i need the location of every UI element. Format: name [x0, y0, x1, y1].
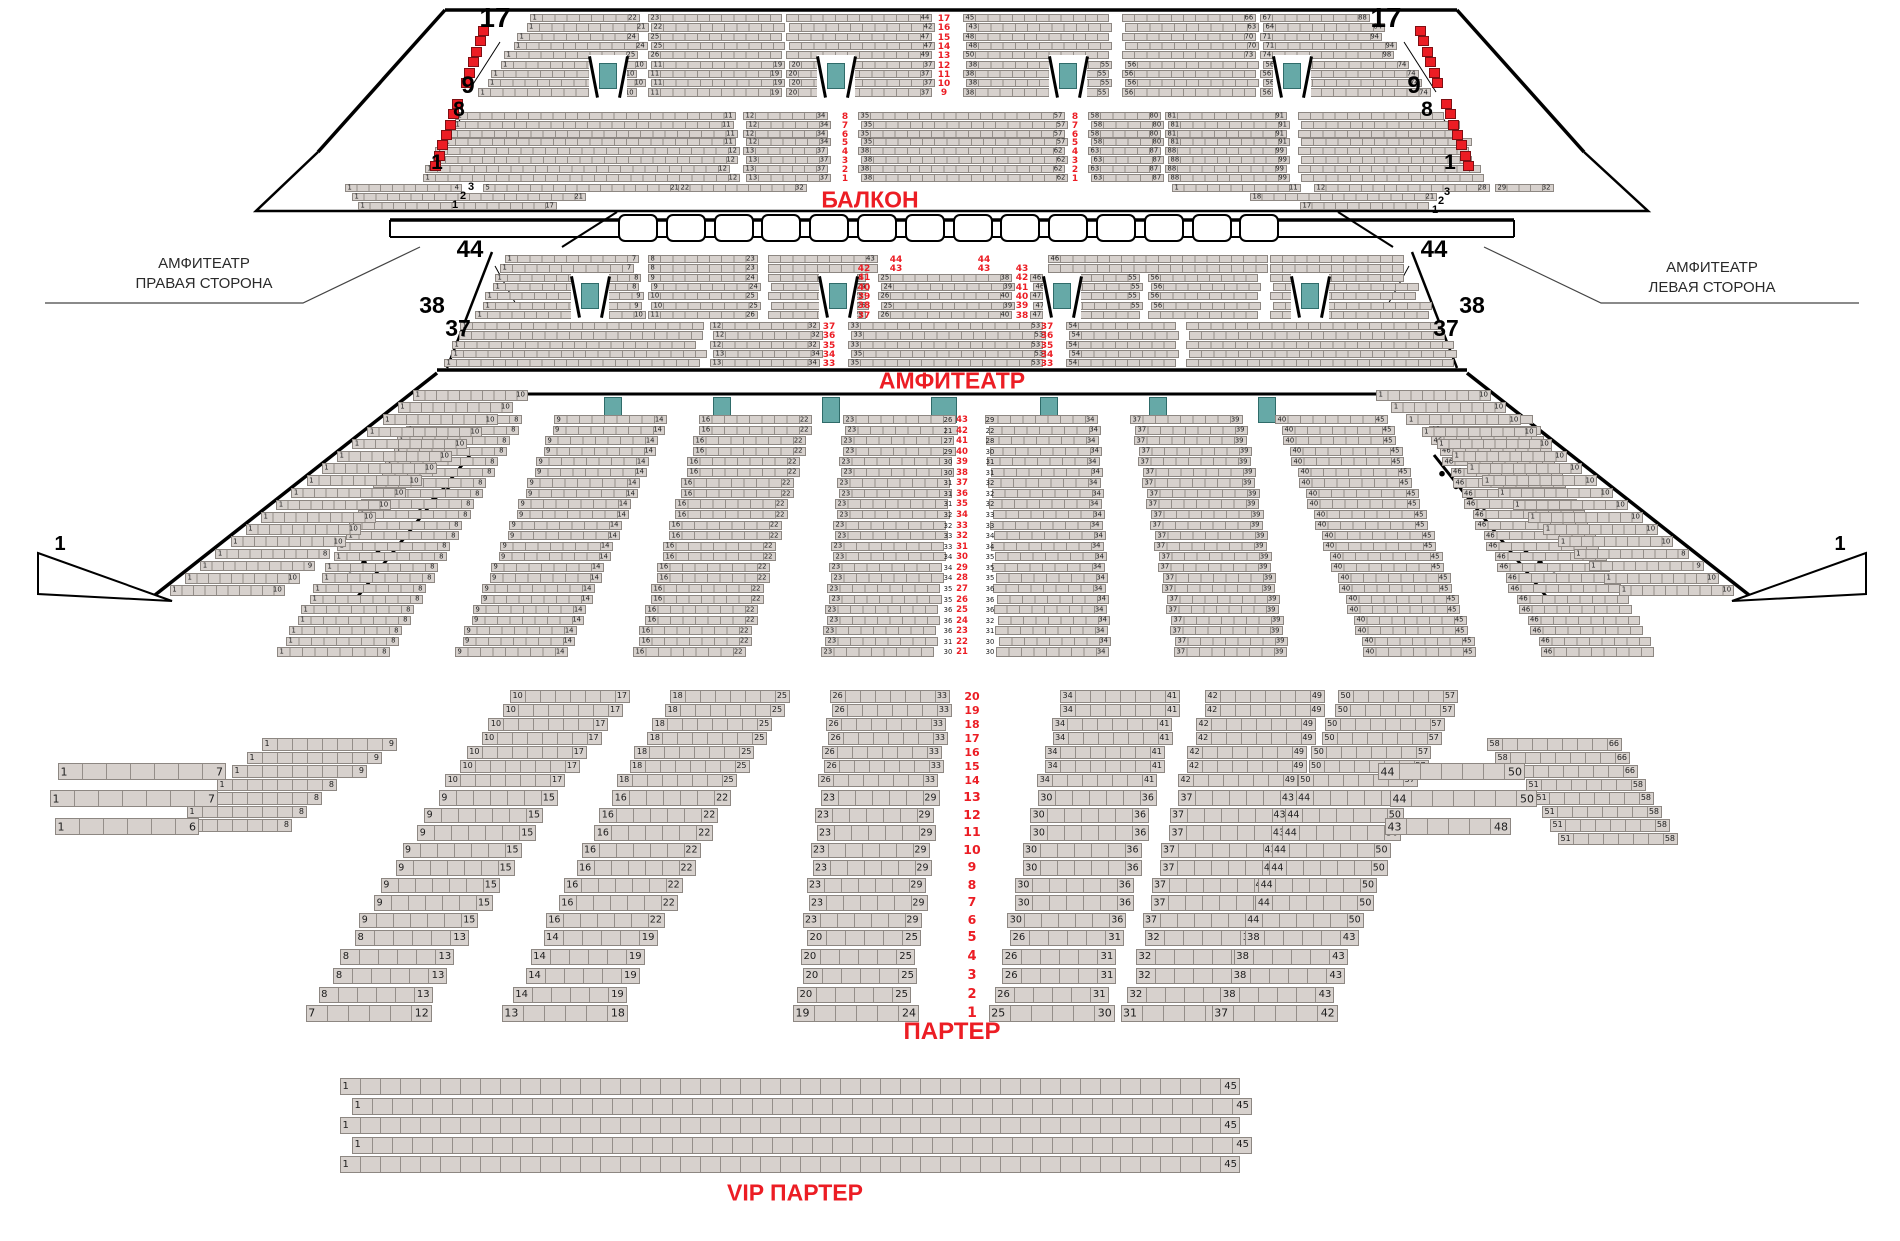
- seat-row[interactable]: 2633: [822, 746, 942, 759]
- seat-row[interactable]: 34: [988, 478, 1101, 487]
- seat-row[interactable]: 3739: [1138, 457, 1251, 466]
- seat-row[interactable]: 23: [829, 563, 942, 572]
- seat-row[interactable]: 924: [651, 283, 761, 291]
- seat-row[interactable]: 3441: [1037, 774, 1157, 787]
- seat-row[interactable]: 3739: [1135, 426, 1248, 435]
- seat-row[interactable]: 1232: [713, 331, 823, 339]
- seat-row[interactable]: [1186, 341, 1454, 349]
- seat-row[interactable]: 3739: [1174, 647, 1287, 656]
- seat-row[interactable]: 124: [517, 33, 639, 41]
- seat-row[interactable]: 124: [514, 42, 648, 50]
- seat-row[interactable]: 111: [1172, 184, 1301, 192]
- seat-row[interactable]: 34: [994, 531, 1107, 540]
- seat-row[interactable]: 8191: [1165, 112, 1287, 120]
- seat-row[interactable]: 8899: [1168, 174, 1290, 182]
- seat-row[interactable]: 34: [990, 447, 1103, 456]
- seat-row[interactable]: 110: [307, 475, 422, 486]
- seat-row[interactable]: 18: [325, 563, 438, 572]
- seat-row[interactable]: 26: [648, 51, 782, 59]
- seat-row[interactable]: 34: [991, 542, 1104, 551]
- seat-row[interactable]: 1622: [633, 647, 746, 656]
- seat-row[interactable]: 48: [963, 33, 1109, 41]
- seat-row[interactable]: 4045: [1347, 605, 1460, 614]
- seat-row[interactable]: 914: [545, 436, 658, 445]
- seat-row[interactable]: 1622: [645, 605, 758, 614]
- seat-row[interactable]: 1017: [482, 732, 602, 745]
- seat-row[interactable]: 3855: [966, 79, 1112, 87]
- seat-row[interactable]: 3557: [858, 130, 1065, 138]
- red-seat[interactable]: [1425, 57, 1436, 67]
- seat-row[interactable]: 4450: [1255, 895, 1374, 911]
- seat-row[interactable]: 4450: [1378, 763, 1525, 780]
- seat-row[interactable]: 4045: [1282, 426, 1395, 435]
- seat-row[interactable]: 3036: [1015, 895, 1134, 911]
- seat-row[interactable]: 110: [1482, 475, 1597, 486]
- seat-row[interactable]: 34: [997, 595, 1110, 604]
- seat-row[interactable]: 914: [508, 531, 621, 540]
- seat-row[interactable]: 2037: [789, 79, 935, 87]
- seat-row[interactable]: 3353: [848, 341, 1043, 349]
- seat-row[interactable]: 3739: [1175, 637, 1288, 646]
- seat-row[interactable]: 122: [530, 14, 640, 22]
- balcony-box[interactable]: [1096, 214, 1136, 242]
- seat-row[interactable]: 2439: [881, 283, 1015, 291]
- seat-row[interactable]: 1017: [503, 704, 623, 717]
- seat-row[interactable]: 34: [987, 457, 1100, 466]
- seat-row[interactable]: 46: [1508, 584, 1621, 593]
- seat-row[interactable]: 1825: [617, 774, 737, 787]
- seat-row[interactable]: 3743: [1151, 895, 1270, 911]
- seat-row[interactable]: 1622: [687, 457, 800, 466]
- seat-row[interactable]: 4450: [1390, 790, 1537, 807]
- seat-row[interactable]: 23: [827, 584, 940, 593]
- seat-row[interactable]: 914: [500, 542, 613, 551]
- seat-row[interactable]: 3742: [1212, 1005, 1338, 1022]
- seat-row[interactable]: 3843: [1234, 949, 1348, 965]
- seat-row[interactable]: 712: [306, 1005, 432, 1022]
- seat-row[interactable]: 1622: [669, 521, 782, 530]
- seat-row[interactable]: 112: [433, 156, 738, 164]
- seat-row[interactable]: 2633: [832, 704, 952, 717]
- seat-row[interactable]: 2631: [1010, 930, 1124, 946]
- seat-row[interactable]: 23: [841, 436, 954, 445]
- seat-row[interactable]: 18: [313, 584, 426, 593]
- seat-row[interactable]: 4045: [1330, 552, 1443, 561]
- seat-row[interactable]: 73: [1122, 51, 1256, 59]
- seat-row[interactable]: 3036: [1038, 790, 1157, 806]
- seat-row[interactable]: 3557: [858, 112, 1065, 120]
- seat-row[interactable]: 18: [215, 549, 330, 560]
- balcony-box[interactable]: [666, 214, 706, 242]
- seat-row[interactable]: 3441: [1060, 704, 1180, 717]
- seat-row[interactable]: 3036: [1030, 825, 1149, 841]
- seat-row[interactable]: 2329: [817, 825, 936, 841]
- seat-row[interactable]: 1825: [665, 704, 785, 717]
- red-seat[interactable]: [1456, 140, 1467, 150]
- seat-row[interactable]: 2025: [801, 949, 915, 965]
- seat-row[interactable]: 4045: [1363, 647, 1476, 656]
- seat-row[interactable]: 18: [277, 647, 390, 656]
- red-seat[interactable]: [445, 120, 456, 130]
- balcony-box[interactable]: [761, 214, 801, 242]
- seat-row[interactable]: 914: [463, 637, 576, 646]
- seat-row[interactable]: 6788: [1260, 14, 1370, 22]
- seat-row[interactable]: 6387: [1091, 156, 1164, 164]
- seat-row[interactable]: 1017: [460, 760, 580, 773]
- balcony-box[interactable]: [1144, 214, 1184, 242]
- seat-row[interactable]: 2329: [815, 808, 934, 824]
- seat-row[interactable]: 110: [1422, 427, 1537, 438]
- seat-row[interactable]: 813: [355, 930, 469, 946]
- seat-row[interactable]: 110: [352, 439, 467, 450]
- seat-row[interactable]: [1301, 174, 1484, 182]
- seat-row[interactable]: 7194: [1263, 42, 1397, 50]
- seat-row[interactable]: 23: [837, 478, 950, 487]
- seat-row[interactable]: 2538: [878, 274, 1012, 282]
- seat-row[interactable]: 4045: [1323, 542, 1436, 551]
- seat-row[interactable]: 1622: [639, 626, 752, 635]
- seat-row[interactable]: 17: [50, 790, 218, 807]
- seat-row[interactable]: 3739: [1142, 478, 1255, 487]
- seat-row[interactable]: 19: [1589, 561, 1704, 572]
- seat-row[interactable]: 3036: [1007, 913, 1126, 929]
- balcony-box[interactable]: [714, 214, 754, 242]
- seat-row[interactable]: 3739: [1130, 415, 1243, 424]
- red-seat[interactable]: [1418, 36, 1429, 46]
- seat-row[interactable]: 1622: [612, 790, 731, 806]
- seat-row[interactable]: 6387: [1088, 165, 1161, 173]
- seat-row[interactable]: 4045: [1283, 436, 1396, 445]
- red-seat[interactable]: [441, 130, 452, 140]
- seat-row[interactable]: 4045: [1322, 531, 1435, 540]
- seat-row[interactable]: 18: [495, 274, 641, 282]
- seat-row[interactable]: 8899: [1168, 156, 1290, 164]
- seat-row[interactable]: 111: [445, 130, 738, 138]
- seat-row[interactable]: 2232: [678, 184, 807, 192]
- seat-row[interactable]: 3739: [1150, 521, 1263, 530]
- red-seat[interactable]: [1429, 68, 1440, 78]
- red-seat[interactable]: [1432, 78, 1443, 88]
- seat-row[interactable]: 23: [833, 552, 946, 561]
- seat-row[interactable]: 915: [381, 878, 500, 894]
- seat-row[interactable]: 3862: [861, 156, 1068, 164]
- seat-row[interactable]: 2633: [818, 774, 938, 787]
- seat-row[interactable]: 1419: [531, 949, 645, 965]
- seat-row[interactable]: 47: [789, 42, 935, 50]
- seat-row[interactable]: 5880: [1088, 112, 1161, 120]
- balcony-box[interactable]: [1000, 214, 1040, 242]
- seat-row[interactable]: 5057: [1335, 704, 1455, 717]
- seat-row[interactable]: 18: [301, 605, 414, 614]
- seat-row[interactable]: 1622: [681, 489, 794, 498]
- seat-row[interactable]: 56: [1148, 274, 1258, 282]
- seat-row[interactable]: 1622: [645, 616, 758, 625]
- seat-row[interactable]: 3739: [1147, 489, 1260, 498]
- seat-row[interactable]: 1232: [710, 341, 820, 349]
- seat-row[interactable]: 110: [291, 488, 406, 499]
- seat-row[interactable]: 18: [286, 637, 399, 646]
- seat-row[interactable]: 1017: [510, 690, 630, 703]
- seat-row[interactable]: 1334: [713, 350, 823, 358]
- seat-row[interactable]: 56: [1122, 70, 1256, 78]
- seat-row[interactable]: 18: [187, 806, 307, 819]
- seat-row[interactable]: 3855: [963, 88, 1109, 96]
- seat-row[interactable]: 5880: [1088, 130, 1161, 138]
- seat-row[interactable]: 110: [1543, 524, 1658, 535]
- seat-row[interactable]: 4450: [1269, 860, 1388, 876]
- seat-row[interactable]: 110: [398, 402, 513, 413]
- seat-row[interactable]: 3036: [1023, 860, 1142, 876]
- seat-row[interactable]: 63: [1125, 23, 1259, 31]
- seat-row[interactable]: 3739: [1167, 595, 1280, 604]
- seat-row[interactable]: 5866: [1487, 738, 1622, 751]
- seat-row[interactable]: 4045: [1314, 510, 1427, 519]
- seat-row[interactable]: 8191: [1168, 138, 1290, 146]
- seat-row[interactable]: 18: [493, 283, 639, 291]
- seat-row[interactable]: 2640: [878, 292, 1012, 300]
- seat-row[interactable]: 1622: [577, 860, 696, 876]
- seat-row[interactable]: 46: [1517, 595, 1630, 604]
- seat-row[interactable]: 915: [374, 895, 493, 911]
- seat-row[interactable]: 42: [789, 23, 935, 31]
- seat-row[interactable]: 34: [992, 489, 1105, 498]
- seat-row[interactable]: 914: [481, 595, 594, 604]
- seat-row[interactable]: 46: [1048, 255, 1268, 263]
- seat-row[interactable]: 1119: [648, 88, 782, 96]
- seat-row[interactable]: 4045: [1275, 415, 1388, 424]
- seat-row[interactable]: 1622: [594, 825, 713, 841]
- seat-row[interactable]: 34: [989, 499, 1102, 508]
- seat-row[interactable]: 2025: [807, 930, 921, 946]
- seat-row[interactable]: 18: [1574, 549, 1689, 560]
- seat-row[interactable]: 2631: [1002, 968, 1116, 984]
- seat-row[interactable]: 110: [1558, 536, 1673, 547]
- seat-row[interactable]: 110: [276, 500, 391, 511]
- seat-row[interactable]: 1419: [544, 930, 658, 946]
- seat-row[interactable]: 2329: [813, 860, 932, 876]
- seat-row[interactable]: 23: [835, 531, 948, 540]
- seat-row[interactable]: 4450: [1272, 843, 1391, 859]
- seat-row[interactable]: 4450: [1258, 878, 1377, 894]
- seat-row[interactable]: 2329: [811, 843, 930, 859]
- seat-row[interactable]: 823: [648, 255, 758, 263]
- seat-row[interactable]: 23: [845, 426, 958, 435]
- seat-row[interactable]: 1234: [746, 138, 831, 146]
- seat-row[interactable]: 1622: [693, 436, 806, 445]
- seat-row[interactable]: 5158: [1542, 806, 1662, 819]
- seat-row[interactable]: 914: [499, 552, 612, 561]
- seat-row[interactable]: 1126: [648, 311, 758, 319]
- seat-row[interactable]: 111: [455, 112, 736, 120]
- seat-row[interactable]: 3743: [1169, 825, 1288, 841]
- seat-row[interactable]: 2037: [786, 70, 932, 78]
- seat-row[interactable]: 2631: [1002, 949, 1116, 965]
- seat-row[interactable]: 2633: [824, 760, 944, 773]
- seat-row[interactable]: 23: [648, 14, 782, 22]
- seat-row[interactable]: 1622: [663, 542, 776, 551]
- seat-row[interactable]: 2329: [807, 878, 926, 894]
- seat-row[interactable]: 3739: [1151, 510, 1264, 519]
- seat-row[interactable]: 18: [289, 626, 402, 635]
- seat-row[interactable]: 23: [843, 447, 956, 456]
- red-seat[interactable]: [468, 57, 479, 67]
- seat-row[interactable]: 110: [337, 451, 452, 462]
- seat-row[interactable]: 1622: [669, 531, 782, 540]
- seat-row[interactable]: 4249: [1205, 704, 1325, 717]
- seat-row[interactable]: 110: [1376, 390, 1491, 401]
- seat-row[interactable]: 1622: [582, 843, 701, 859]
- seat-row[interactable]: 1232: [710, 322, 820, 330]
- seat-row[interactable]: 1025: [648, 292, 758, 300]
- seat-row[interactable]: 3739: [1155, 531, 1268, 540]
- vip-seat-row[interactable]: 145: [340, 1156, 1240, 1173]
- seat-row[interactable]: 1825: [634, 746, 754, 759]
- seat-row[interactable]: 23: [839, 457, 952, 466]
- seat-row[interactable]: 1825: [630, 760, 750, 773]
- seat-row[interactable]: [1189, 331, 1445, 339]
- seat-row[interactable]: 56: [1148, 292, 1258, 300]
- seat-row[interactable]: [1301, 138, 1472, 146]
- seat-row[interactable]: 46: [1541, 647, 1654, 656]
- seat-row[interactable]: 3739: [1139, 447, 1252, 456]
- seat-row[interactable]: 1622: [657, 573, 770, 582]
- seat-row[interactable]: 3743: [1178, 790, 1297, 806]
- seat-row[interactable]: 25: [648, 33, 782, 41]
- seat-row[interactable]: 914: [526, 489, 639, 498]
- seat-row[interactable]: 3843: [1231, 968, 1345, 984]
- seat-row[interactable]: 3441: [1052, 718, 1172, 731]
- seat-row[interactable]: 915: [424, 808, 543, 824]
- seat-row[interactable]: 54: [1069, 350, 1179, 358]
- seat-row[interactable]: 6387: [1088, 147, 1161, 155]
- seat-row[interactable]: 112: [425, 165, 730, 173]
- seat-row[interactable]: 4045: [1354, 616, 1467, 625]
- seat-row[interactable]: 34: [991, 468, 1104, 477]
- seat-row[interactable]: 3739: [1158, 563, 1271, 572]
- seat-row[interactable]: 3553: [848, 359, 1043, 367]
- seat-row[interactable]: 5057: [1325, 718, 1445, 731]
- seat-row[interactable]: 924: [648, 274, 758, 282]
- seat-row[interactable]: 3739: [1170, 626, 1283, 635]
- seat-row[interactable]: 19: [232, 765, 367, 778]
- seat-row[interactable]: 121: [352, 193, 586, 201]
- balcony-box[interactable]: [809, 214, 849, 242]
- seat-row[interactable]: 914: [491, 563, 604, 572]
- seat-row[interactable]: 22: [651, 23, 785, 31]
- seat-row[interactable]: 34: [999, 637, 1112, 646]
- seat-row[interactable]: 2633: [828, 732, 948, 745]
- seat-row[interactable]: 1825: [652, 718, 772, 731]
- seat-row[interactable]: 110: [261, 512, 376, 523]
- seat-row[interactable]: 3743: [1161, 843, 1280, 859]
- seat-row[interactable]: 1622: [675, 499, 788, 508]
- seat-row[interactable]: 18: [346, 531, 459, 540]
- seat-row[interactable]: [1270, 264, 1404, 272]
- seat-row[interactable]: 18: [202, 792, 322, 805]
- seat-row[interactable]: 46: [1530, 626, 1643, 635]
- seat-row[interactable]: 110: [475, 311, 646, 319]
- seat-row[interactable]: 914: [517, 510, 630, 519]
- seat-row[interactable]: 1622: [546, 913, 665, 929]
- seat-row[interactable]: 110: [1498, 488, 1613, 499]
- seat-row[interactable]: 1622: [651, 584, 764, 593]
- seat-row[interactable]: 813: [333, 968, 447, 984]
- red-seat[interactable]: [1460, 151, 1471, 161]
- seat-row[interactable]: 44: [786, 14, 932, 22]
- seat-row[interactable]: 4045: [1299, 478, 1412, 487]
- seat-row[interactable]: 915: [439, 790, 558, 806]
- seat-row[interactable]: 23: [829, 595, 942, 604]
- seat-row[interactable]: [1148, 311, 1258, 319]
- red-seat[interactable]: [1441, 99, 1452, 109]
- balcony-box[interactable]: [1239, 214, 1279, 242]
- seat-row[interactable]: 914: [490, 573, 603, 582]
- seat-row[interactable]: 56: [1122, 88, 1256, 96]
- seat-row[interactable]: 56: [1151, 302, 1261, 310]
- seat-row[interactable]: 2329: [809, 895, 928, 911]
- seat-row[interactable]: 3743: [1170, 808, 1289, 824]
- seat-row[interactable]: 1622: [639, 637, 752, 646]
- seat-row[interactable]: 54: [1069, 331, 1179, 339]
- seat-row[interactable]: 1: [459, 331, 703, 339]
- seat-row[interactable]: 4045: [1346, 595, 1459, 604]
- seat-row[interactable]: 3441: [1053, 732, 1173, 745]
- seat-row[interactable]: 5057: [1311, 746, 1431, 759]
- seat-row[interactable]: 914: [518, 499, 631, 508]
- seat-row[interactable]: 4045: [1291, 457, 1404, 466]
- vip-seat-row[interactable]: 145: [340, 1117, 1240, 1134]
- seat-row[interactable]: 43: [768, 255, 878, 263]
- seat-row[interactable]: 1622: [681, 478, 794, 487]
- seat-row[interactable]: 1119: [648, 70, 782, 78]
- seat-row[interactable]: 19: [483, 302, 642, 310]
- seat-row[interactable]: 54: [1066, 341, 1176, 349]
- seat-row[interactable]: 110: [246, 524, 361, 535]
- seat-row[interactable]: 3843: [1220, 987, 1334, 1003]
- seat-row[interactable]: 3353: [851, 331, 1046, 339]
- seat-row[interactable]: 4450: [1245, 913, 1364, 929]
- seat-row[interactable]: 23: [841, 468, 954, 477]
- seat-row[interactable]: 4045: [1355, 626, 1468, 635]
- seat-row[interactable]: 23: [821, 647, 934, 656]
- seat-row[interactable]: 1821: [1250, 193, 1437, 201]
- seat-row[interactable]: 2633: [830, 690, 950, 703]
- seat-row[interactable]: 1119: [651, 79, 785, 87]
- seat-row[interactable]: 3855: [966, 61, 1112, 69]
- seat-row[interactable]: 110: [1452, 451, 1567, 462]
- seat-row[interactable]: 121: [527, 23, 649, 31]
- seat-row[interactable]: 18: [310, 595, 423, 604]
- seat-row[interactable]: 23: [843, 415, 956, 424]
- seat-row[interactable]: 6387: [1091, 174, 1164, 182]
- seat-row[interactable]: 17: [505, 255, 639, 263]
- seat-row[interactable]: 4045: [1362, 637, 1475, 646]
- seat-row[interactable]: 914: [473, 605, 586, 614]
- seat-row[interactable]: 2640: [878, 311, 1012, 319]
- seat-row[interactable]: [1301, 121, 1460, 129]
- seat-row[interactable]: 1334: [710, 359, 820, 367]
- seat-row[interactable]: 3036: [1015, 878, 1134, 894]
- seat-row[interactable]: 17: [500, 264, 634, 272]
- seat-row[interactable]: 3862: [861, 174, 1068, 182]
- red-seat[interactable]: [475, 36, 486, 46]
- seat-row[interactable]: 1622: [564, 878, 683, 894]
- seat-row[interactable]: 1825: [647, 732, 767, 745]
- seat-row[interactable]: 4045: [1315, 521, 1428, 530]
- seat-row[interactable]: 54: [1066, 359, 1176, 367]
- seat-row[interactable]: 3843: [1245, 930, 1359, 946]
- seat-row[interactable]: 23: [837, 510, 950, 519]
